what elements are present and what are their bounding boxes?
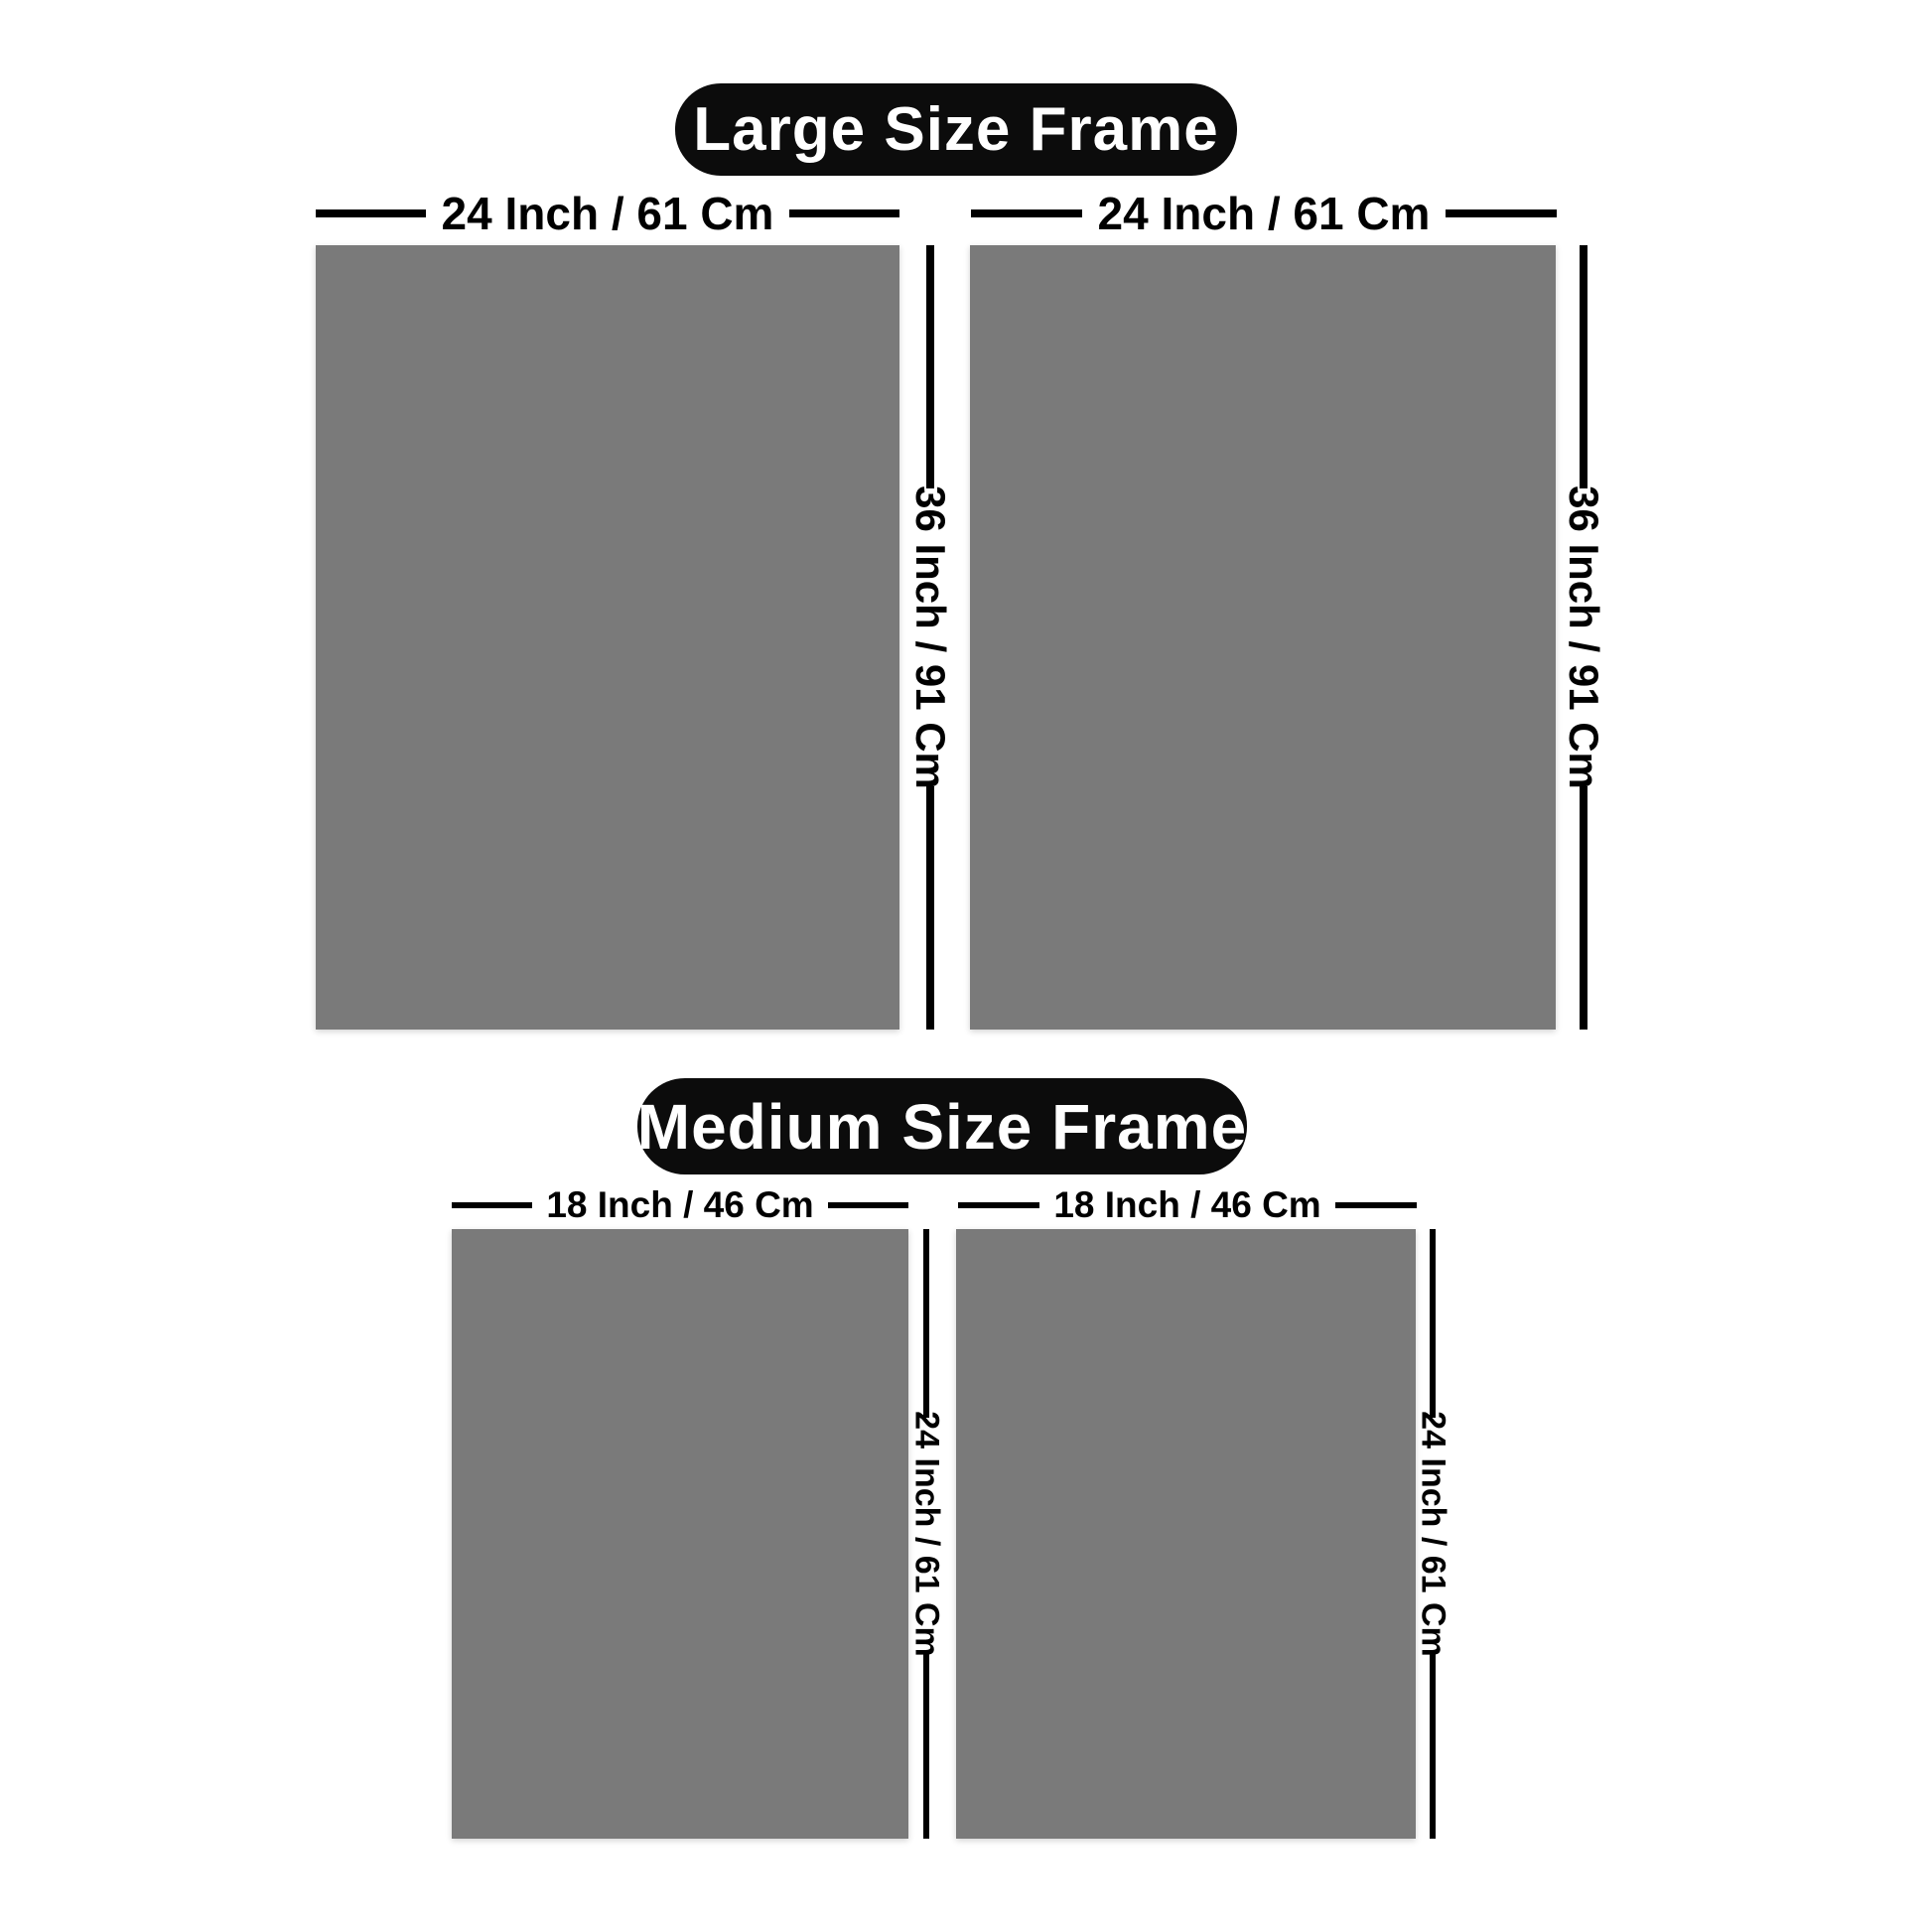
dimension-line (1580, 786, 1587, 1030)
section-title-large: Large Size Frame (675, 83, 1237, 176)
frame-preview-medium-left (452, 1229, 908, 1839)
dimension-line (316, 209, 426, 217)
width-dimension-large-right: 24 Inch / 61 Cm (971, 190, 1557, 237)
dimension-line (1430, 1651, 1436, 1840)
dimension-line (958, 1202, 1039, 1208)
width-dimension-medium-left: 18 Inch / 46 Cm (452, 1182, 908, 1228)
dimension-line (971, 209, 1082, 217)
section-title-medium: Medium Size Frame (637, 1078, 1247, 1174)
height-dimension-large-right: 36 Inch / 91 Cm (1556, 245, 1611, 1030)
width-dimension-large-left: 24 Inch / 61 Cm (316, 190, 899, 237)
dimension-line (452, 1202, 532, 1208)
frame-size-guide: Large Size Frame 24 Inch / 61 Cm 24 Inch… (0, 0, 1932, 1932)
height-dimension-label-box: 36 Inch / 91 Cm (1556, 488, 1611, 786)
dimension-line (1580, 245, 1587, 488)
frame-preview-large-left (316, 245, 899, 1030)
frame-preview-large-right (970, 245, 1556, 1030)
width-dimension-label: 24 Inch / 61 Cm (426, 187, 790, 240)
height-dimension-label-box: 24 Inch / 61 Cm (1408, 1418, 1457, 1651)
height-dimension-label-box: 36 Inch / 91 Cm (902, 488, 958, 786)
frame-preview-medium-right (956, 1229, 1416, 1839)
width-dimension-label: 24 Inch / 61 Cm (1082, 187, 1447, 240)
dimension-line (1430, 1229, 1436, 1418)
dimension-line (1446, 209, 1557, 217)
height-dimension-label-box: 24 Inch / 61 Cm (901, 1418, 951, 1651)
width-dimension-medium-right: 18 Inch / 46 Cm (958, 1182, 1417, 1228)
dimension-line (789, 209, 899, 217)
dimension-line (926, 245, 934, 488)
height-dimension-medium-left: 24 Inch / 61 Cm (901, 1229, 951, 1839)
height-dimension-label: 24 Inch / 61 Cm (907, 1411, 946, 1657)
dimension-line (923, 1229, 929, 1418)
dimension-line (923, 1651, 929, 1840)
dimension-line (1335, 1202, 1417, 1208)
height-dimension-label: 36 Inch / 91 Cm (1560, 485, 1607, 789)
width-dimension-label: 18 Inch / 46 Cm (532, 1184, 827, 1226)
height-dimension-large-left: 36 Inch / 91 Cm (902, 245, 958, 1030)
dimension-line (828, 1202, 908, 1208)
height-dimension-label: 36 Inch / 91 Cm (906, 485, 954, 789)
height-dimension-label: 24 Inch / 61 Cm (1414, 1411, 1452, 1657)
height-dimension-medium-right: 24 Inch / 61 Cm (1408, 1229, 1457, 1839)
width-dimension-label: 18 Inch / 46 Cm (1039, 1184, 1334, 1226)
dimension-line (926, 786, 934, 1030)
